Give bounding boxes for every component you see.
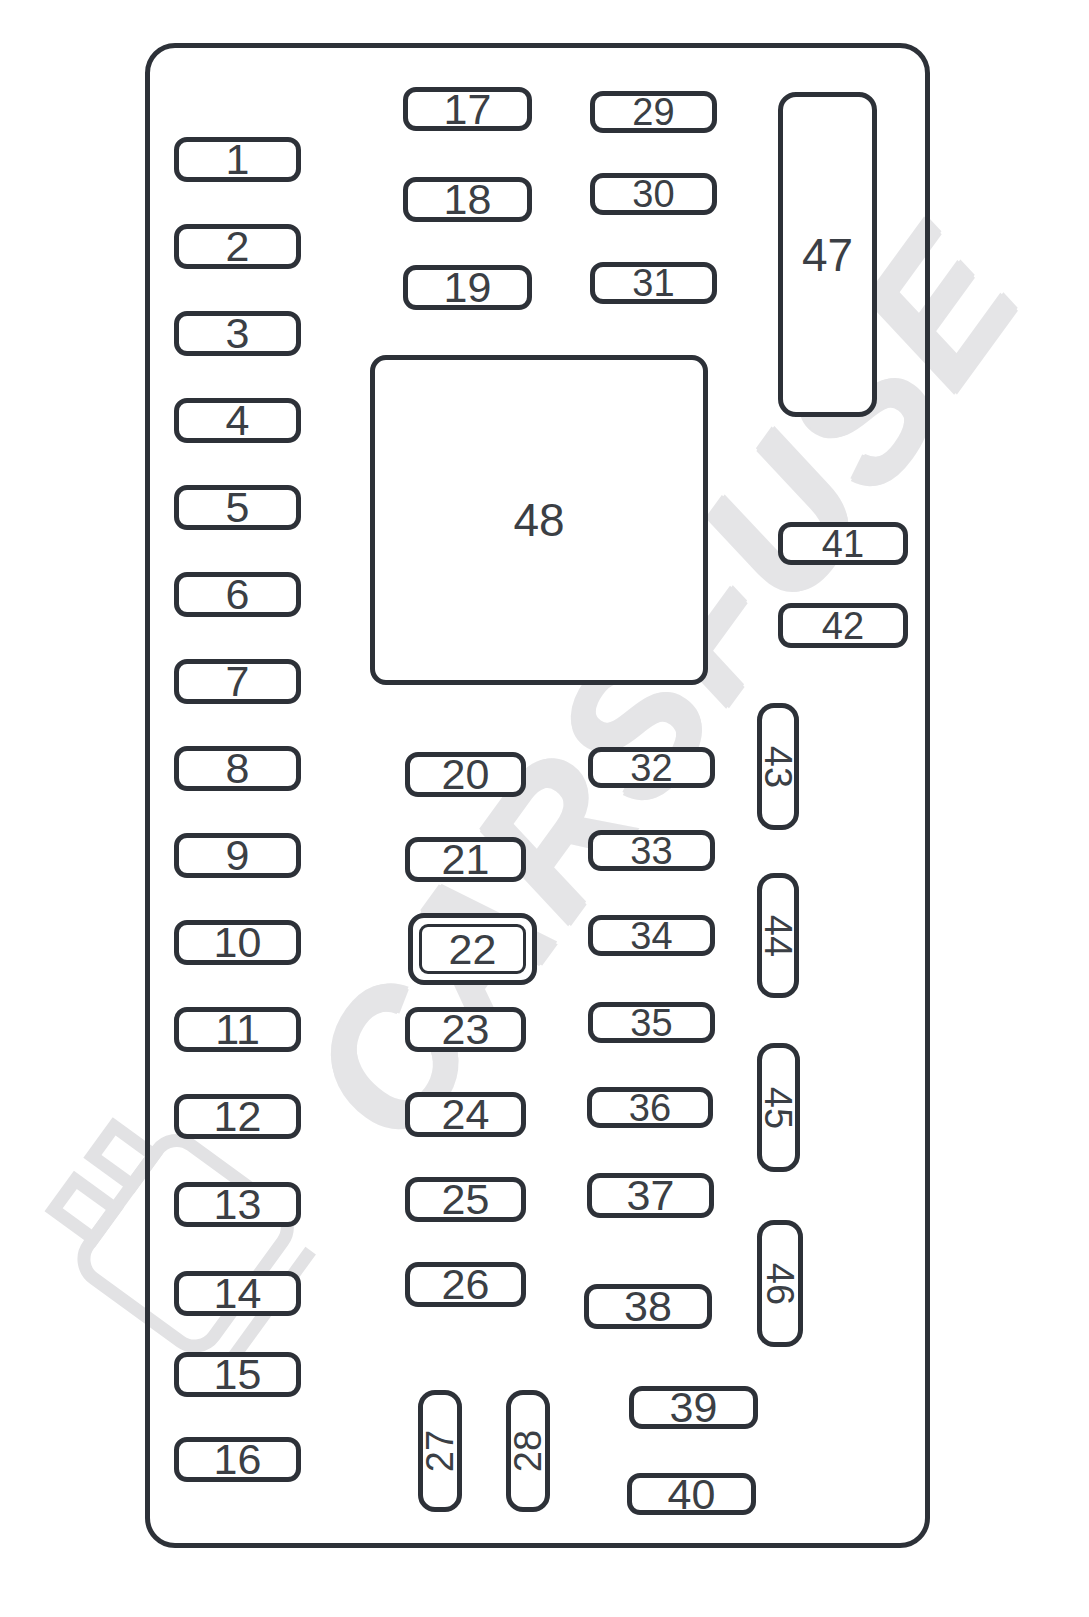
fuse-1-label: 1 (226, 138, 250, 181)
fuse-16: 16 (174, 1437, 301, 1482)
fuse-39: 39 (629, 1386, 758, 1429)
fuse-31: 31 (590, 262, 717, 304)
fuse-11-label: 11 (215, 1008, 260, 1051)
relay-block-47-label: 47 (802, 232, 853, 278)
fuse-7-label: 7 (226, 660, 250, 703)
fuse-10-label: 10 (214, 921, 262, 964)
fuse-38-label: 38 (624, 1285, 672, 1328)
fuse-15: 15 (174, 1352, 301, 1397)
fuse-7: 7 (174, 659, 301, 704)
fuse-6-label: 6 (226, 573, 250, 616)
fuse-30-label: 30 (632, 175, 674, 213)
fuse-16-label: 16 (214, 1438, 262, 1481)
fuse-36: 36 (587, 1087, 713, 1128)
fuse-8: 8 (174, 746, 301, 791)
fuse-9: 9 (174, 833, 301, 878)
relay-block-47: 47 (778, 92, 877, 417)
fuse-41-label: 41 (822, 525, 864, 563)
fuse-8-label: 8 (226, 747, 250, 790)
fuse-1: 1 (174, 137, 301, 182)
fuse-2-label: 2 (226, 225, 250, 268)
fuse-44: 44 (757, 873, 799, 998)
fuse-12: 12 (174, 1094, 301, 1139)
fuse-35-label: 35 (630, 1004, 672, 1042)
fuse-43: 43 (757, 703, 799, 830)
fuse-9-label: 9 (226, 834, 250, 877)
fuse-44-label: 44 (759, 914, 797, 956)
fuse-18: 18 (403, 177, 532, 222)
fuse-14: 14 (174, 1271, 301, 1316)
fuse-15-label: 15 (214, 1353, 262, 1396)
fuse-45: 45 (757, 1043, 800, 1172)
fuse-28: 28 (506, 1390, 550, 1512)
fuse-36-label: 36 (629, 1089, 671, 1127)
fuse-21-label: 21 (442, 838, 490, 881)
fuse-3: 3 (174, 311, 301, 356)
fuse-box-diagram: CARSFUSE 1 2 3 4 5 6 7 8 9 10 11 12 13 1… (0, 0, 1089, 1617)
fuse-23-label: 23 (442, 1008, 490, 1051)
fuse-3-label: 3 (226, 312, 250, 355)
fuse-41: 41 (778, 522, 908, 565)
fuse-39-label: 39 (670, 1386, 718, 1429)
relay-block-48: 48 (370, 355, 708, 685)
fuse-20-label: 20 (442, 753, 490, 796)
fuse-29: 29 (590, 91, 717, 133)
fuse-28-label: 28 (509, 1430, 547, 1472)
fuse-33: 33 (588, 830, 715, 871)
fuse-13: 13 (174, 1182, 301, 1227)
fuse-12-label: 12 (214, 1095, 262, 1138)
fuse-27: 27 (418, 1390, 462, 1512)
fuse-30: 30 (590, 173, 717, 215)
fuse-13-label: 13 (214, 1183, 262, 1226)
fuse-42: 42 (778, 603, 908, 648)
fuse-27-label: 27 (421, 1430, 459, 1472)
fuse-43-label: 43 (759, 745, 797, 787)
relay-block-48-label: 48 (513, 497, 564, 543)
fuse-29-label: 29 (632, 93, 674, 131)
fuse-46-label: 46 (761, 1262, 799, 1304)
fuse-26: 26 (405, 1262, 526, 1307)
fuse-32-label: 32 (630, 749, 672, 787)
fuse-18-label: 18 (444, 178, 492, 221)
fuse-37-label: 37 (627, 1174, 675, 1217)
fuse-4: 4 (174, 398, 301, 443)
fuse-24: 24 (405, 1092, 526, 1137)
fuse-26-label: 26 (442, 1263, 490, 1306)
fuse-11: 11 (174, 1007, 301, 1052)
fuse-22-label: 22 (449, 928, 497, 971)
logo-fuse-blade-left (54, 1180, 115, 1239)
fuse-14-label: 14 (214, 1272, 262, 1315)
fuse-22: 22 (408, 913, 537, 985)
fuse-42-label: 42 (822, 607, 864, 645)
fuse-34: 34 (588, 915, 715, 956)
fuse-33-label: 33 (630, 832, 672, 870)
fuse-31-label: 31 (632, 264, 674, 302)
fuse-25: 25 (405, 1177, 526, 1222)
fuse-37: 37 (587, 1173, 714, 1218)
fuse-23: 23 (405, 1007, 526, 1052)
fuse-2: 2 (174, 224, 301, 269)
fuse-35: 35 (588, 1002, 715, 1043)
fuse-34-label: 34 (630, 917, 672, 955)
fuse-17-label: 17 (444, 88, 492, 131)
fuse-10: 10 (174, 920, 301, 965)
fuse-19-label: 19 (444, 266, 492, 309)
fuse-25-label: 25 (442, 1178, 490, 1221)
fuse-5-label: 5 (226, 486, 250, 529)
fuse-32: 32 (588, 747, 715, 788)
fuse-5: 5 (174, 485, 301, 530)
fuse-24-label: 24 (442, 1093, 490, 1136)
fuse-17: 17 (403, 87, 532, 131)
fuse-6: 6 (174, 572, 301, 617)
fuse-46: 46 (757, 1220, 803, 1347)
fuse-20: 20 (405, 752, 526, 797)
fuse-21: 21 (405, 837, 526, 882)
fuse-38: 38 (584, 1284, 712, 1329)
fuse-19: 19 (403, 265, 532, 310)
fuse-4-label: 4 (226, 399, 250, 442)
fuse-40-label: 40 (668, 1473, 716, 1516)
fuse-40: 40 (627, 1473, 756, 1515)
fuse-45-label: 45 (760, 1086, 798, 1128)
